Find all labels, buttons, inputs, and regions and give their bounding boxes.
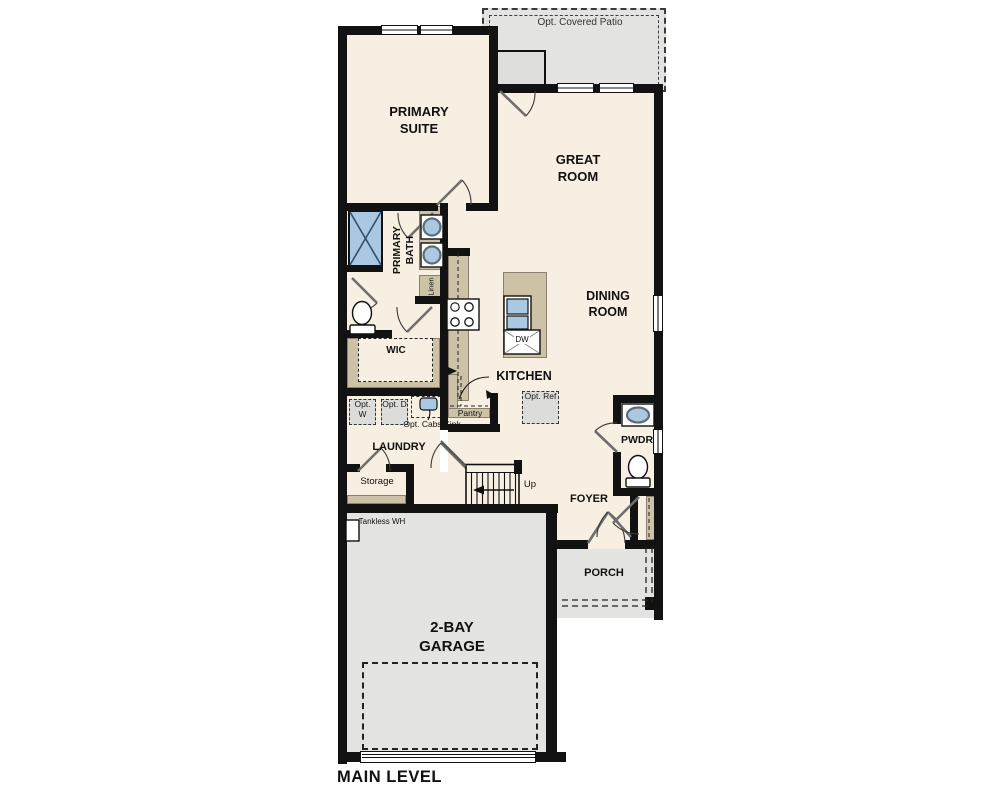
wall-segment: [466, 203, 498, 211]
garage-label: 2-BAY GARAGE: [397, 619, 507, 657]
wall-segment: [440, 248, 470, 256]
wall-segment: [514, 460, 522, 474]
window: [557, 83, 594, 93]
opt-ref-label: Opt. Ref: [525, 391, 557, 401]
opt-dryer-label: Opt. D: [382, 399, 407, 409]
garage-bay-dash: [362, 662, 538, 750]
opt-washer-label: Opt. W: [354, 399, 370, 419]
main-level-title: MAIN LEVEL: [337, 767, 507, 788]
storage-shelf: [347, 495, 406, 504]
wall-segment: [338, 26, 498, 35]
garage-door-opening: [360, 751, 536, 763]
dining-room-label: DINING ROOM: [573, 288, 643, 321]
wic-label: WIC: [366, 344, 426, 357]
pwdr-label: PWDR: [611, 434, 663, 448]
wall-segment: [625, 540, 663, 549]
pantry-label: Pantry: [448, 408, 492, 419]
patio-pad: [496, 50, 546, 88]
window: [599, 83, 634, 93]
tankless-wh-label: Tankless WH: [358, 517, 406, 527]
window: [381, 25, 418, 35]
window: [653, 295, 663, 332]
kitchen-label: KITCHEN: [486, 368, 562, 384]
opt-cabs-sink-label: Opt. Cabs/Sink: [403, 419, 461, 429]
wall-segment: [630, 496, 638, 542]
opt-washer-box: Opt. W: [349, 399, 376, 425]
wall-segment: [613, 395, 621, 424]
great-room-floor: [492, 90, 658, 208]
opt-ref-box: Opt. Ref: [522, 391, 559, 424]
wall-segment: [613, 488, 663, 496]
great-room-label: GREAT ROOM: [543, 152, 613, 186]
floor-plan-image: Opt. W Opt. D Opt. Ref: [0, 0, 1000, 800]
wall-segment: [489, 26, 498, 210]
porch-post: [645, 597, 658, 610]
wall-segment: [338, 388, 448, 396]
wall-segment: [338, 203, 438, 211]
dishwasher-label: DW: [504, 335, 540, 345]
window: [420, 25, 453, 35]
porch-label: PORCH: [566, 566, 642, 580]
wall-segment: [556, 540, 588, 549]
kitchen-dining-floor: [448, 206, 654, 472]
up-label: Up: [516, 479, 544, 491]
storage-label: Storage: [346, 476, 408, 488]
wall-segment: [338, 330, 392, 338]
primary-suite-label: PRIMARY SUITE: [379, 104, 459, 138]
foyer-label: FOYER: [559, 492, 619, 506]
laundry-label: LAUNDRY: [357, 440, 441, 454]
wall-segment: [338, 464, 360, 472]
linen-label: Linen: [413, 267, 449, 305]
patio-label: Opt. Covered Patio: [500, 16, 660, 29]
front-door-threshold: [588, 540, 625, 549]
wall-segment: [338, 504, 558, 513]
